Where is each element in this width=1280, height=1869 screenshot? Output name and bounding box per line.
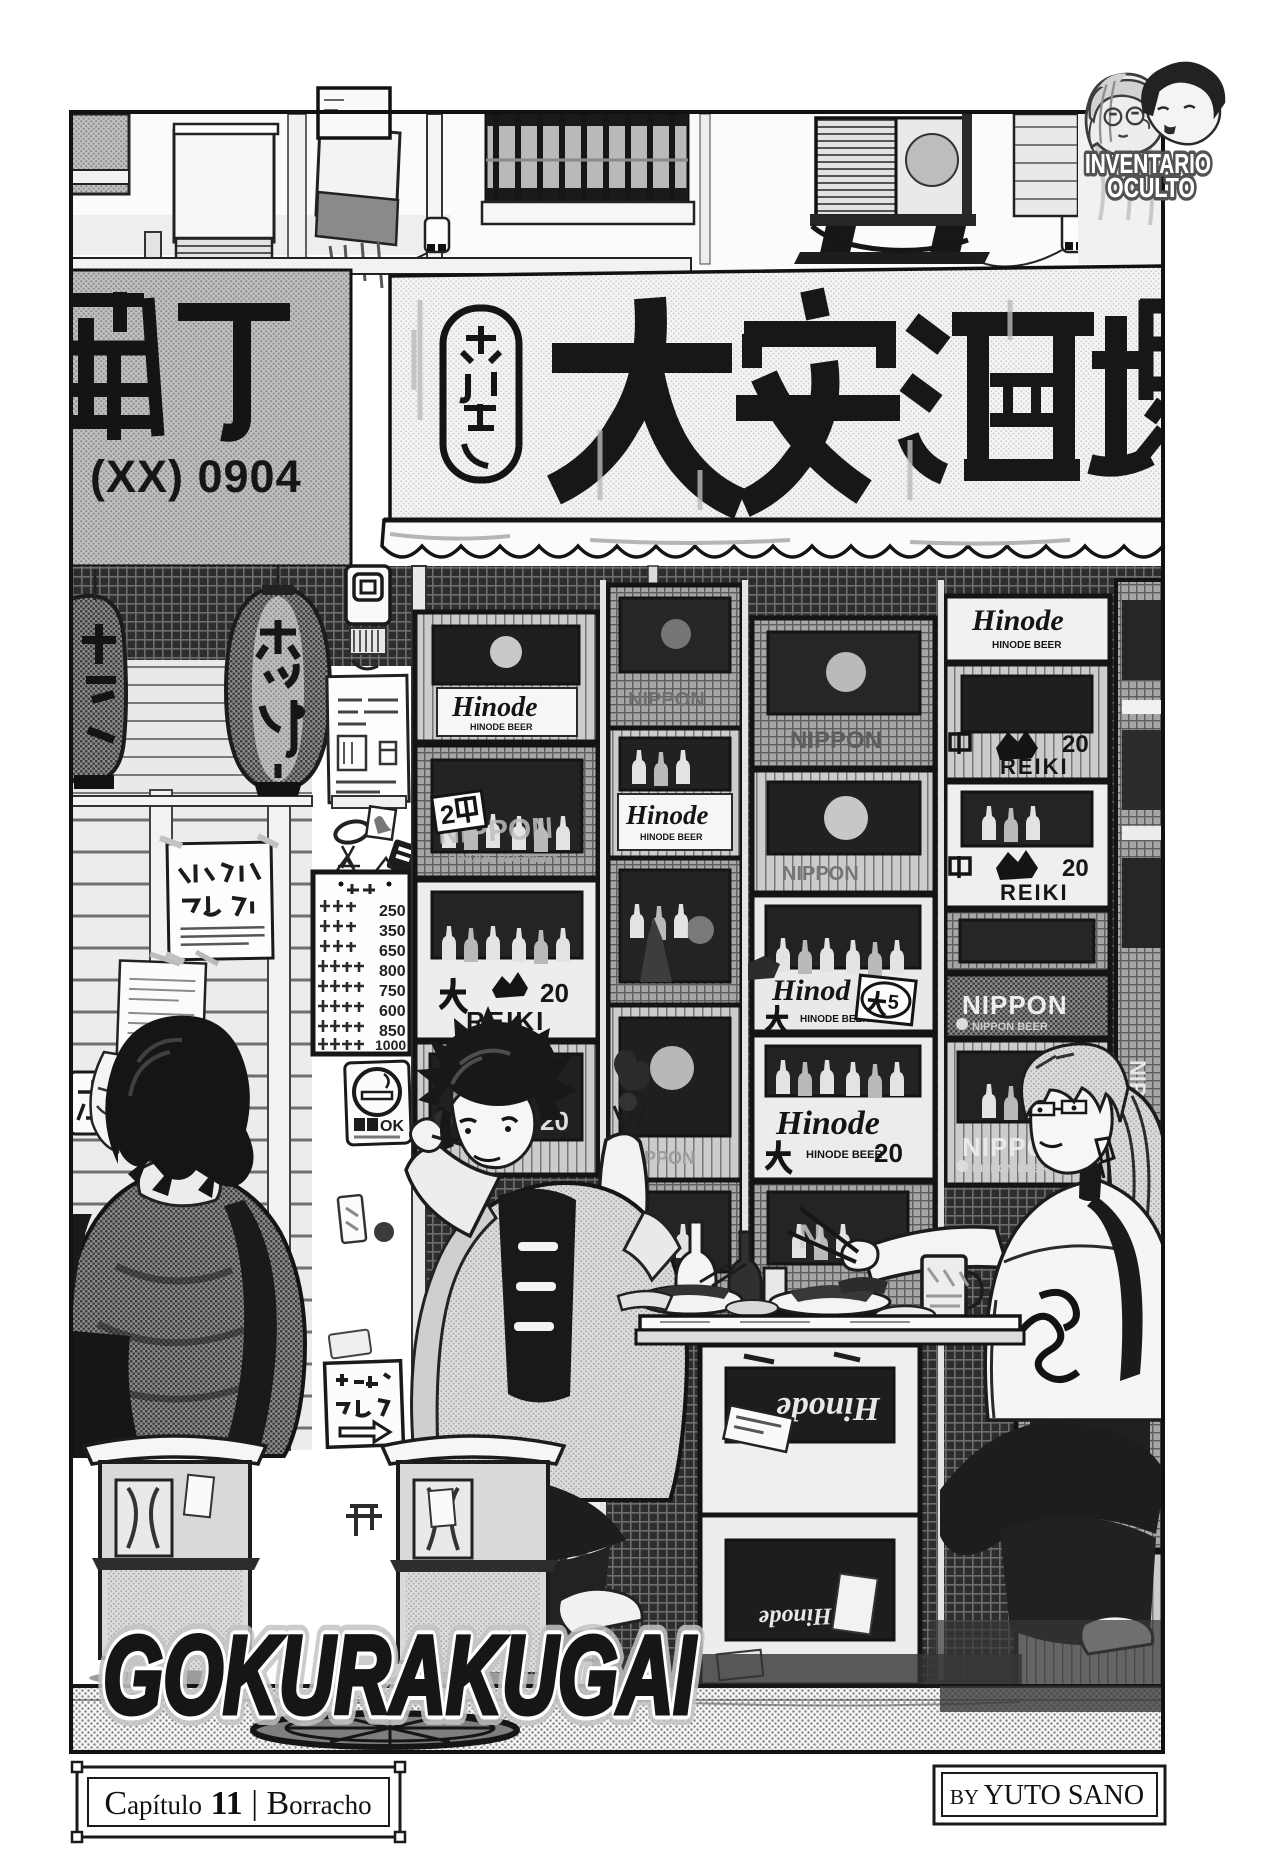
svg-text:BY YUTO SANO: BY YUTO SANO xyxy=(950,1780,1144,1811)
svg-text:(XX) 0904: (XX) 0904 xyxy=(90,451,302,502)
svg-text:5: 5 xyxy=(887,991,900,1014)
svg-text:HINODE BREWERY: HINODE BREWERY xyxy=(448,851,559,865)
svg-text:20: 20 xyxy=(540,978,569,1008)
svg-text:600: 600 xyxy=(379,1003,406,1020)
svg-text:OK: OK xyxy=(380,1118,404,1135)
svg-text:Hinode: Hinode xyxy=(758,1603,834,1632)
svg-text:Hinode: Hinode xyxy=(451,692,538,723)
svg-text:Hinode: Hinode xyxy=(775,1105,880,1142)
svg-text:OCULTO: OCULTO xyxy=(1107,172,1195,203)
svg-text:REIKI: REIKI xyxy=(1000,880,1069,905)
svg-text:Hinode: Hinode xyxy=(971,604,1064,637)
svg-text:NIPPON: NIPPON xyxy=(962,990,1068,1020)
svg-text:HINODE BEER: HINODE BEER xyxy=(992,640,1062,651)
svg-text:NIPPON: NIPPON xyxy=(790,727,882,754)
svg-text:1000: 1000 xyxy=(375,1037,406,1053)
svg-text:NIPPON: NIPPON xyxy=(628,689,705,711)
svg-text:NIPPON: NIPPON xyxy=(782,863,859,885)
svg-text:250: 250 xyxy=(379,903,406,920)
svg-text:GOKURAKUGAI: GOKURAKUGAI xyxy=(103,1614,697,1737)
svg-text:HINODE BEER: HINODE BEER xyxy=(640,832,703,842)
svg-text:HINODE BEER: HINODE BEER xyxy=(470,722,533,732)
svg-text:NIPPON BEER: NIPPON BEER xyxy=(972,1163,1048,1175)
svg-text:20: 20 xyxy=(874,1138,903,1168)
svg-text:750: 750 xyxy=(379,983,406,1000)
svg-text:NIPPON BEER: NIPPON BEER xyxy=(972,1021,1048,1033)
svg-text:650: 650 xyxy=(379,943,406,960)
svg-text:800: 800 xyxy=(379,963,406,980)
svg-text:REIKI: REIKI xyxy=(1000,754,1069,779)
svg-text:350: 350 xyxy=(379,923,406,940)
svg-text:Capítulo 11 | Borracho: Capítulo 11 | Borracho xyxy=(104,1785,371,1822)
svg-text:20: 20 xyxy=(1062,855,1089,882)
svg-text:Hinode: Hinode xyxy=(625,800,709,830)
svg-text:Hinod: Hinod xyxy=(771,974,851,1007)
svg-text:HINODE BEER: HINODE BEER xyxy=(806,1149,882,1161)
